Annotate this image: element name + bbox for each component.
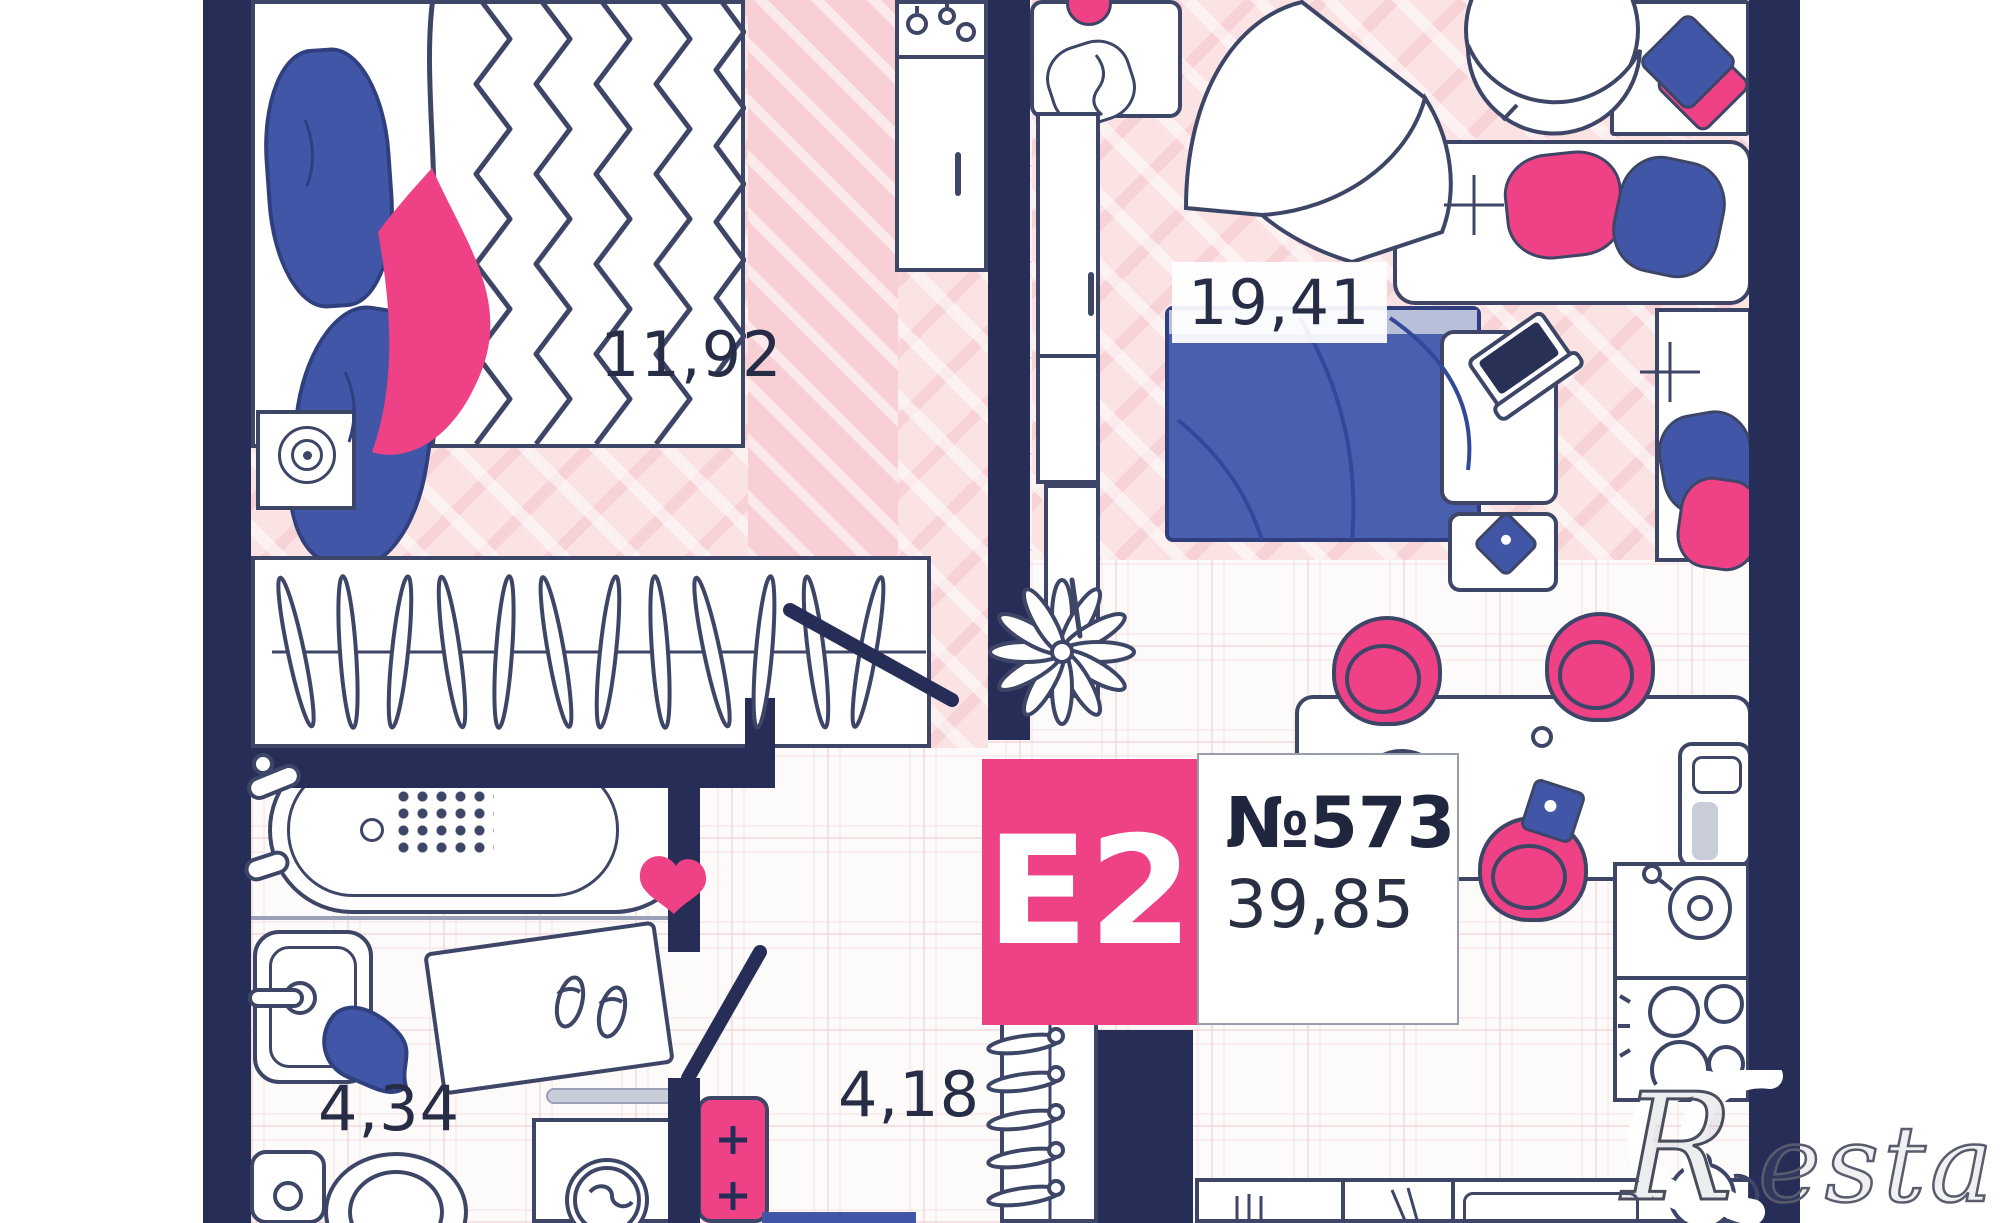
dresser-handle: [955, 152, 961, 196]
dining-chair-1: [1332, 616, 1442, 726]
wall-left: [203, 0, 251, 1223]
bathroom-sink-basin: [269, 946, 357, 1068]
desk: [1440, 330, 1558, 505]
washing-machine: [532, 1118, 684, 1223]
serving-tray: [1678, 742, 1752, 868]
wall-right: [1749, 0, 1800, 1223]
bedroom-area-label: 11,92: [600, 318, 783, 391]
unit-type-label: E2: [986, 817, 1193, 967]
dining-chair-2: [1545, 612, 1655, 722]
bathtub-dots: [394, 788, 494, 858]
wall-partition-bedroom-living: [988, 0, 1030, 740]
bedside-rug: [748, 0, 898, 560]
unit-total-area: 39,85: [1225, 862, 1457, 948]
wall-hall-kitchen-block: [1098, 1030, 1193, 1223]
floor-plan: 11,92 4,34 4,18 19,41: [0, 0, 2000, 1223]
living-room-area-label: 19,41: [1172, 262, 1387, 343]
unit-number: №573: [1225, 785, 1457, 862]
dresser: [895, 0, 988, 272]
hall-rug-blue: [762, 1212, 916, 1223]
bathroom-divider: [251, 916, 668, 920]
wall-niche-cabinet: [1036, 112, 1100, 484]
wall-bathroom-right-lower: [668, 1078, 700, 1223]
hallway-area-label: 4,18: [838, 1058, 980, 1131]
watermark-initial: R: [1622, 1074, 1733, 1222]
wall-bathroom-right-upper: [668, 788, 700, 952]
unit-info-box: №573 39,85: [1197, 753, 1459, 1025]
watermark: R estate: [1600, 1060, 2000, 1223]
watermark-text: estate: [1758, 1112, 2000, 1218]
bathroom-area-label: 4,34: [318, 1072, 460, 1145]
cabinet-handle: [1088, 272, 1094, 316]
wall-niche-lower: [1044, 484, 1100, 698]
bathtub-drain: [360, 818, 384, 842]
unit-card: E2 №573 39,85: [982, 753, 1459, 1025]
shoe-cabinet: [697, 1096, 769, 1223]
washer-shelf: [546, 1088, 686, 1104]
unit-type-badge: E2: [982, 759, 1197, 1025]
wall-bedroom-bottom: [203, 748, 775, 788]
wardrobe: [251, 556, 931, 748]
nightstand: [256, 410, 356, 510]
wall-bedroom-door-stub: [745, 698, 775, 788]
